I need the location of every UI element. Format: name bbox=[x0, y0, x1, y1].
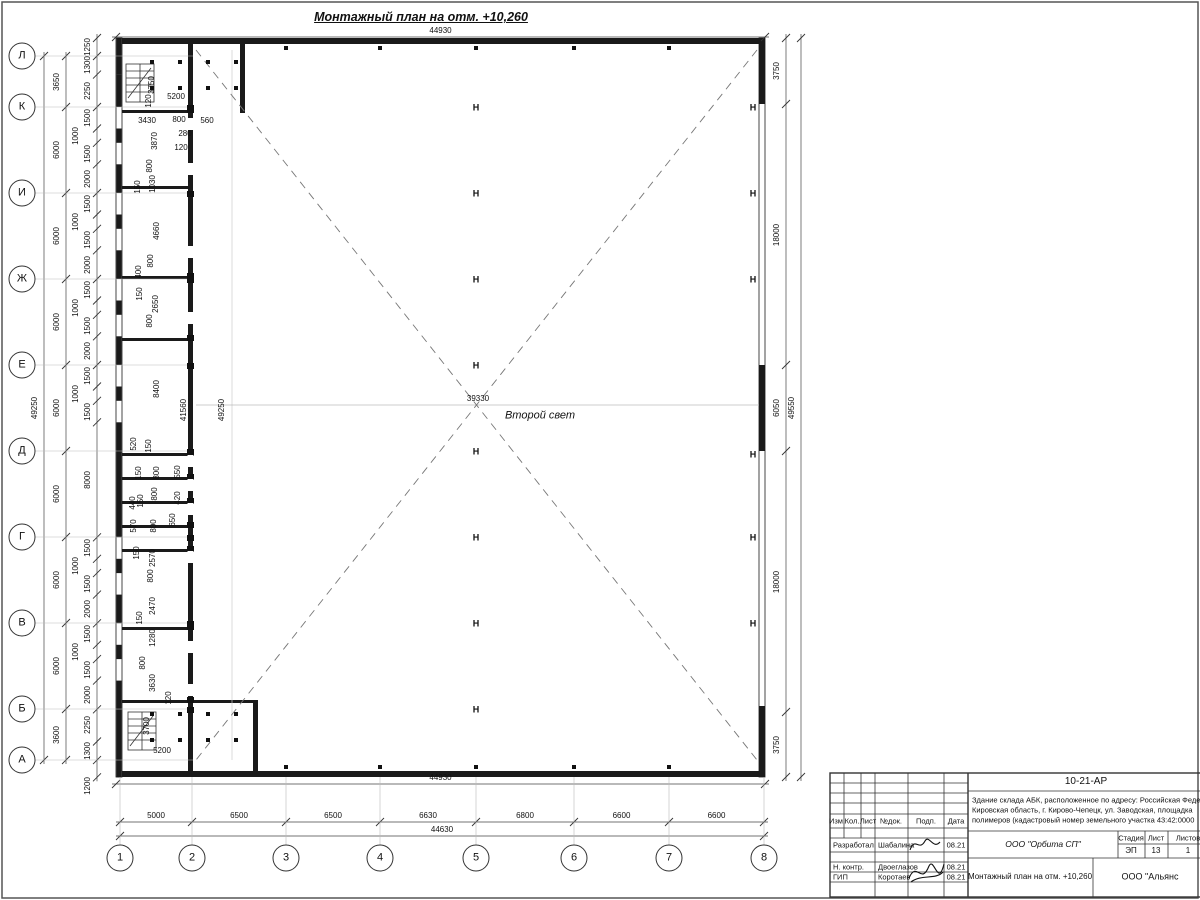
drawing-sheet: 3650600060006000600060006000600036004925… bbox=[0, 0, 1200, 900]
tb-header-izm: Изм. bbox=[829, 817, 845, 825]
dim-label: 2000 bbox=[84, 342, 92, 360]
dim-label: 280 bbox=[178, 130, 191, 138]
dim-label: 44930 bbox=[429, 774, 451, 782]
tb-sheet-value: 13 bbox=[1152, 847, 1161, 855]
dim-label: 800 bbox=[172, 116, 185, 124]
dim-label: 2000 bbox=[84, 256, 92, 274]
dim-label: 3700 bbox=[143, 717, 151, 735]
tb-name: Двоеглазов bbox=[878, 863, 918, 871]
dim-label: 8400 bbox=[153, 380, 161, 398]
dim-label: 1500 bbox=[84, 367, 92, 385]
axis-bubble-label: Д bbox=[18, 446, 25, 457]
dim-label: 800 bbox=[151, 487, 159, 500]
dim-label: 2250 bbox=[84, 716, 92, 734]
dim-label: 1500 bbox=[84, 231, 92, 249]
dim-label: 1000 bbox=[72, 557, 80, 575]
column-symbol: Н bbox=[750, 534, 757, 543]
axis-bubble-label: 2 bbox=[189, 853, 195, 864]
dim-label: 1500 bbox=[84, 317, 92, 335]
tb-sheet-header: Лист bbox=[1148, 834, 1164, 842]
column-symbol: Н bbox=[473, 534, 480, 543]
column-symbol: Н bbox=[473, 276, 480, 285]
axis-bubble-label: А bbox=[18, 755, 25, 766]
dim-label: 1030 bbox=[149, 175, 157, 193]
project-desc-line: Здание склада АБК, расположенное по адре… bbox=[972, 796, 1200, 804]
dim-label: 3750 bbox=[773, 62, 781, 80]
dim-label: 1500 bbox=[84, 661, 92, 679]
dim-label: 650 bbox=[169, 513, 177, 526]
dim-label: 1000 bbox=[72, 127, 80, 145]
dim-label: 1300 bbox=[84, 742, 92, 760]
column-symbol: Н bbox=[750, 190, 757, 199]
hall-label: Второй свет bbox=[505, 411, 575, 422]
column-symbol: Н bbox=[750, 451, 757, 460]
dim-label: 1500 bbox=[84, 195, 92, 213]
axis-bubble-label: 1 bbox=[117, 853, 123, 864]
dim-label: 1200 bbox=[84, 777, 92, 795]
dim-label: 1250 bbox=[84, 38, 92, 56]
dim-label: 2250 bbox=[84, 82, 92, 100]
dim-label: 120 bbox=[165, 691, 173, 704]
dim-label: 520 bbox=[130, 437, 138, 450]
tb-header-podp: Подп. bbox=[916, 817, 936, 825]
axis-bubble-label: 5 bbox=[473, 853, 479, 864]
tb-company: ООО "Альянс bbox=[1122, 873, 1179, 882]
dim-label: 1000 bbox=[72, 213, 80, 231]
dim-label: 3430 bbox=[138, 117, 156, 125]
dim-label: 1000 bbox=[72, 385, 80, 403]
dim-label: 6600 bbox=[708, 812, 726, 820]
tb-org: ООО "Орбита СП" bbox=[1005, 840, 1080, 849]
dim-label: 150 bbox=[134, 180, 142, 193]
axis-bubble-label: 8 bbox=[761, 853, 767, 864]
tb-header-kol: Кол. bbox=[845, 817, 860, 825]
column-symbol: Н bbox=[750, 620, 757, 629]
dim-label: 120 bbox=[145, 94, 153, 107]
axis-bubble-label: 7 bbox=[666, 853, 672, 864]
dim-label: 49250 bbox=[218, 399, 226, 421]
dim-label: 49250 bbox=[31, 397, 39, 419]
dim-label: 1500 bbox=[84, 403, 92, 421]
dim-label: 6000 bbox=[53, 571, 61, 589]
dim-label: 49550 bbox=[788, 396, 796, 418]
dim-label: 1500 bbox=[84, 145, 92, 163]
project-desc-line: полимеров (кадастровый номер земельного … bbox=[972, 816, 1194, 824]
dim-label: 6500 bbox=[324, 812, 342, 820]
dim-label: 6000 bbox=[53, 657, 61, 675]
dim-label: 6630 bbox=[419, 812, 437, 820]
dim-label: 800 bbox=[146, 159, 154, 172]
dim-label: 2000 bbox=[84, 600, 92, 618]
dim-label: 570 bbox=[130, 519, 138, 532]
dim-label: 150 bbox=[137, 494, 145, 507]
tb-header-data: Дата bbox=[948, 817, 965, 825]
dim-label: 800 bbox=[139, 656, 147, 669]
axis-bubble-label: В bbox=[18, 618, 25, 629]
axis-bubble-label: 6 bbox=[571, 853, 577, 864]
column-symbol: Н bbox=[473, 448, 480, 457]
tb-date: 08.21 bbox=[947, 873, 966, 881]
dim-label: 800 bbox=[146, 314, 154, 327]
dim-label: 560 bbox=[200, 117, 213, 125]
dim-label: 800 bbox=[147, 254, 155, 267]
dim-label: 39330 bbox=[467, 395, 489, 403]
project-desc-line: Кировская область, г. Кирово-Чепецк, ул.… bbox=[972, 806, 1193, 814]
dim-label: 6000 bbox=[53, 399, 61, 417]
dim-label: 800 bbox=[147, 569, 155, 582]
dim-label: 150 bbox=[135, 466, 143, 479]
tb-role: Разработал bbox=[833, 841, 874, 849]
dim-label: 2000 bbox=[84, 170, 92, 188]
axis-bubble-label: Б bbox=[18, 704, 25, 715]
signatures bbox=[909, 839, 944, 882]
column-symbol: Н bbox=[473, 104, 480, 113]
dim-label: 6050 bbox=[773, 399, 781, 417]
tb-role: Н. контр. bbox=[833, 863, 864, 871]
dim-label: 150 bbox=[136, 287, 144, 300]
dim-label: 3630 bbox=[149, 674, 157, 692]
dim-label: 4660 bbox=[153, 222, 161, 240]
dim-label: 1280 bbox=[149, 629, 157, 647]
axis-bubble-label: Л bbox=[18, 51, 25, 62]
axis-bubble-label: 3 bbox=[283, 853, 289, 864]
dim-label: 3870 bbox=[151, 132, 159, 150]
tb-sheets-header: Листов bbox=[1176, 834, 1200, 842]
axis-bubble-label: 4 bbox=[377, 853, 383, 864]
dim-label: 44930 bbox=[429, 27, 451, 35]
column-symbol: Н bbox=[473, 362, 480, 371]
column-symbol: Н bbox=[473, 706, 480, 715]
tb-name: Коротаев bbox=[878, 873, 910, 881]
dim-label: 420 bbox=[174, 491, 182, 504]
dim-label: 2000 bbox=[84, 686, 92, 704]
column-symbol: Н bbox=[473, 620, 480, 629]
drawing-title: Монтажный план на отм. +10,260 bbox=[314, 10, 528, 24]
dim-label: 18000 bbox=[773, 570, 781, 592]
dim-label: 1500 bbox=[84, 281, 92, 299]
dim-label: 1000 bbox=[72, 299, 80, 317]
dim-label: 150 bbox=[136, 611, 144, 624]
dim-label: 800 bbox=[153, 466, 161, 479]
dim-label: 1500 bbox=[84, 575, 92, 593]
building-walls bbox=[116, 38, 765, 777]
column-symbol: Н bbox=[750, 276, 757, 285]
dim-label: 6000 bbox=[53, 141, 61, 159]
dim-label: 3650 bbox=[53, 73, 61, 91]
tb-name: Шабалина bbox=[878, 841, 914, 849]
dim-label: 1500 bbox=[84, 625, 92, 643]
dim-label: 150 bbox=[133, 546, 141, 559]
dim-label: 8000 bbox=[84, 471, 92, 489]
tb-stage-header: Стадия bbox=[1118, 834, 1144, 842]
tb-sheets-value: 1 bbox=[1186, 847, 1190, 855]
dim-label: 550 bbox=[174, 465, 182, 478]
dim-label: 2570 bbox=[149, 549, 157, 567]
axis-bubble-label: И bbox=[18, 188, 26, 199]
dim-label: 1300 bbox=[84, 56, 92, 74]
dim-label: 44630 bbox=[431, 826, 453, 834]
dim-label: 6500 bbox=[230, 812, 248, 820]
tb-role: ГИП bbox=[833, 873, 848, 881]
dim-label: 6000 bbox=[53, 485, 61, 503]
tb-header-ndok: №док. bbox=[880, 817, 902, 825]
axis-bubble-label: К bbox=[19, 102, 25, 113]
dim-label: 3750 bbox=[773, 736, 781, 754]
dim-label: 5200 bbox=[167, 93, 185, 101]
tb-date: 08.21 bbox=[947, 863, 966, 871]
dim-label: 5200 bbox=[153, 747, 171, 755]
tb-date: 08.21 bbox=[947, 841, 966, 849]
dim-label: 2650 bbox=[152, 295, 160, 313]
dim-label: 6600 bbox=[613, 812, 631, 820]
dim-label: 400 bbox=[135, 265, 143, 278]
column-symbol: Н bbox=[473, 190, 480, 199]
axis-bubble-label: Е bbox=[18, 360, 25, 371]
doc-code: 10-21-АР bbox=[1065, 777, 1107, 787]
dim-label: 6000 bbox=[53, 313, 61, 331]
dim-label: 6000 bbox=[53, 227, 61, 245]
axis-bubble-label: Ж bbox=[17, 274, 27, 285]
tb-header-list: Лист bbox=[860, 817, 876, 825]
dim-label: 800 bbox=[150, 519, 158, 532]
axis-bubble-label: Г bbox=[19, 532, 25, 543]
dim-label: 120 bbox=[174, 144, 187, 152]
tb-doc-title: Монтажный план на отм. +10,260 bbox=[968, 873, 1092, 881]
dim-label: 18000 bbox=[773, 223, 781, 245]
dim-label: 1500 bbox=[84, 539, 92, 557]
dim-label: 3600 bbox=[53, 726, 61, 744]
dim-label: 5000 bbox=[147, 812, 165, 820]
dim-label: 3750 bbox=[148, 76, 156, 94]
dim-label: 1500 bbox=[84, 109, 92, 127]
tb-stage-value: ЭП bbox=[1125, 847, 1137, 855]
dim-label: 150 bbox=[145, 439, 153, 452]
dim-label: 1000 bbox=[72, 643, 80, 661]
column-symbol: Н bbox=[750, 104, 757, 113]
dim-label: 6800 bbox=[516, 812, 534, 820]
dim-label: 41560 bbox=[180, 399, 188, 421]
dim-label: 2470 bbox=[149, 597, 157, 615]
